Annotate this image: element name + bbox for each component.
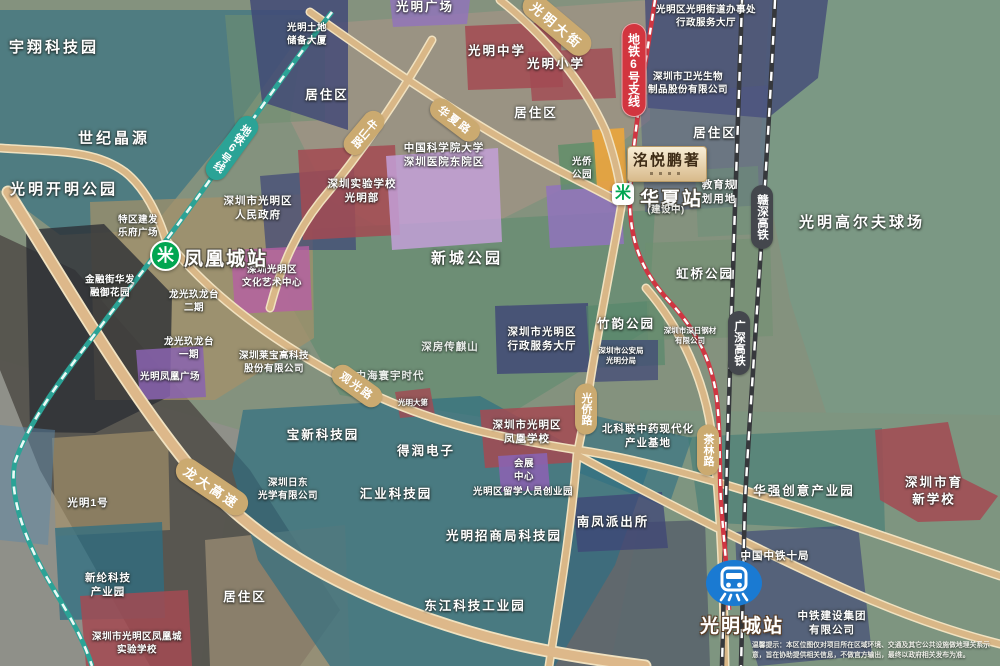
- station-label-huaxia: 华夏站: [640, 184, 703, 211]
- metro-logo-icon: 米: [615, 186, 631, 202]
- logo-ornament: [650, 172, 684, 175]
- map-disclaimer: 温馨提示：本区位图仅对项目所在区域环境、交通及其它公共设施做地理关系示意，旨在协…: [752, 641, 994, 661]
- metro-pill-line6-branch: 地铁6号支线: [622, 23, 647, 117]
- station-label-fenghuangcheng: 凤凰城站: [184, 244, 268, 271]
- metro-station-icon-huaxia: 米: [612, 183, 634, 205]
- metro-logo-icon: 米: [157, 247, 174, 264]
- station-label-guangmingcheng: 光明城站: [700, 611, 784, 638]
- location-map: 宇翔科技园世纪晶源光明开明公园光明广场光明土地 储备大厦居住区居住区居住区居住区…: [0, 0, 1000, 666]
- rail-pill-guangshen: 广深高铁: [728, 311, 750, 375]
- rail-pill-ganshen: 赣深高铁: [751, 185, 773, 249]
- road-pill-chalin-road: 茶林路: [697, 425, 719, 476]
- metro-station-icon-fenghuangcheng: 米: [150, 240, 181, 271]
- train-station-icon-guangmingcheng: [705, 558, 763, 608]
- project-logo-text: 洺悦鹏著: [633, 153, 701, 168]
- basemap-graphic: [0, 0, 1000, 666]
- project-logo-mingyue-pengzhu: 洺悦鹏著: [627, 146, 707, 182]
- road-pill-guangqiao-road: 光侨路: [575, 384, 597, 435]
